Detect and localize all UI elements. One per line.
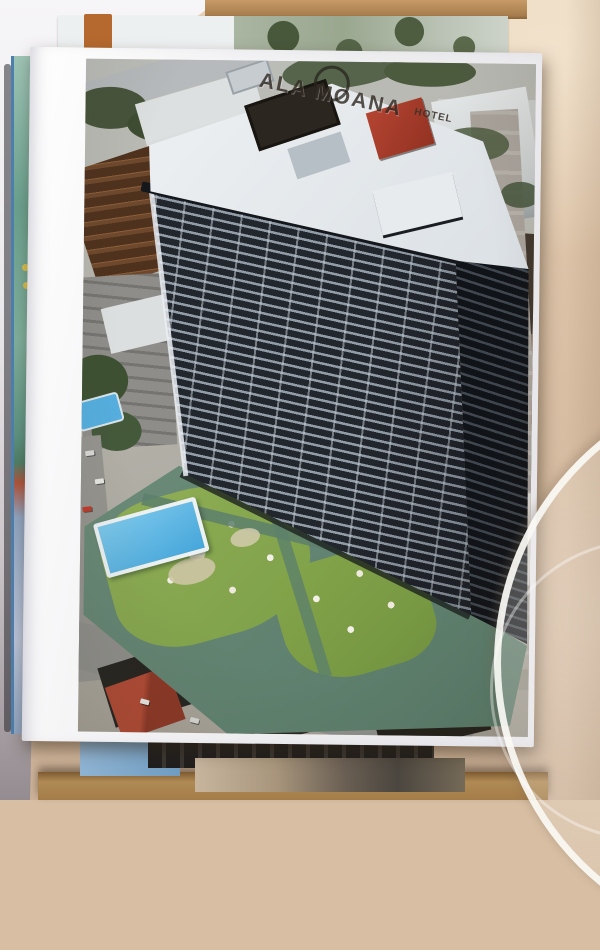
aerial-photo: ALA MOANA HOTEL: [78, 59, 536, 737]
top-postcard: ALA MOANA HOTEL: [22, 47, 542, 747]
postcard-edge-bottom-photo: [195, 758, 465, 792]
photo-trees: [500, 182, 536, 208]
photo-car: [190, 717, 200, 724]
stack-edge-shadow: [4, 64, 11, 732]
photo-trees: [384, 59, 476, 88]
photo-of-postcard-stack: { "scene": { "description": "Photograph …: [0, 0, 600, 800]
